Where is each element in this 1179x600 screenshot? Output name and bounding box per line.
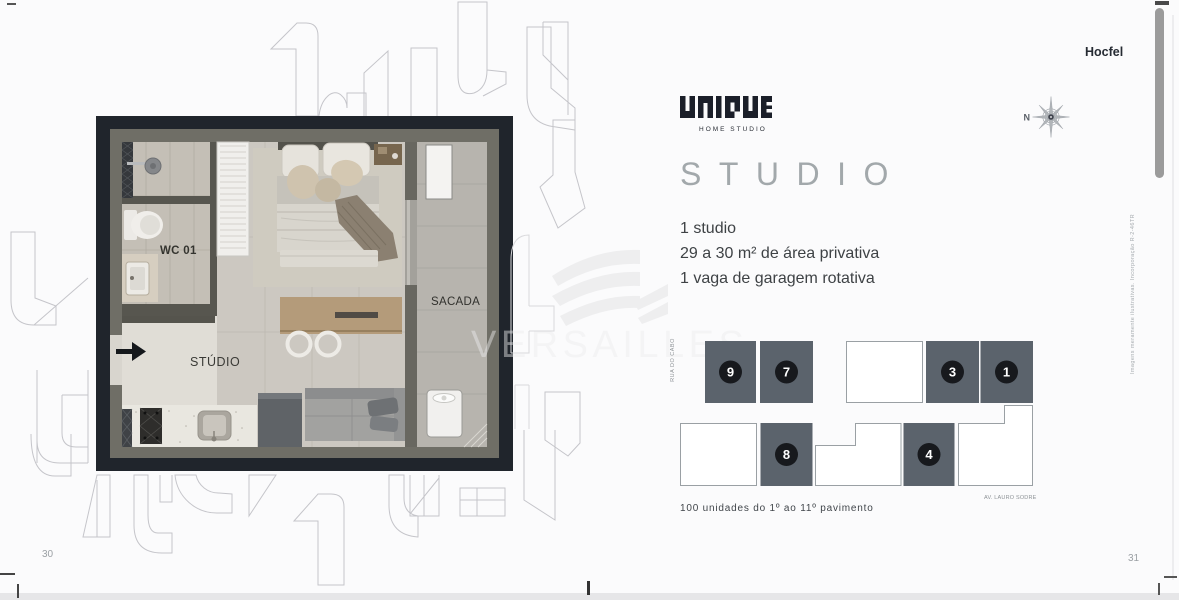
svg-text:SACADA: SACADA [431, 296, 480, 308]
svg-text:8: 8 [783, 447, 790, 462]
svg-text:1: 1 [1003, 365, 1010, 380]
svg-text:RUA DO CABO: RUA DO CABO [670, 338, 676, 382]
svg-text:STÚDIO: STÚDIO [190, 354, 240, 369]
svg-text:3: 3 [949, 365, 956, 380]
svg-text:WC 01: WC 01 [160, 245, 197, 257]
svg-text:N: N [1024, 113, 1031, 123]
svg-text:7: 7 [783, 365, 790, 380]
svg-text:4: 4 [925, 447, 933, 462]
svg-text:AV. LAURO SODRE: AV. LAURO SODRE [984, 495, 1037, 501]
svg-text:9: 9 [727, 365, 734, 380]
